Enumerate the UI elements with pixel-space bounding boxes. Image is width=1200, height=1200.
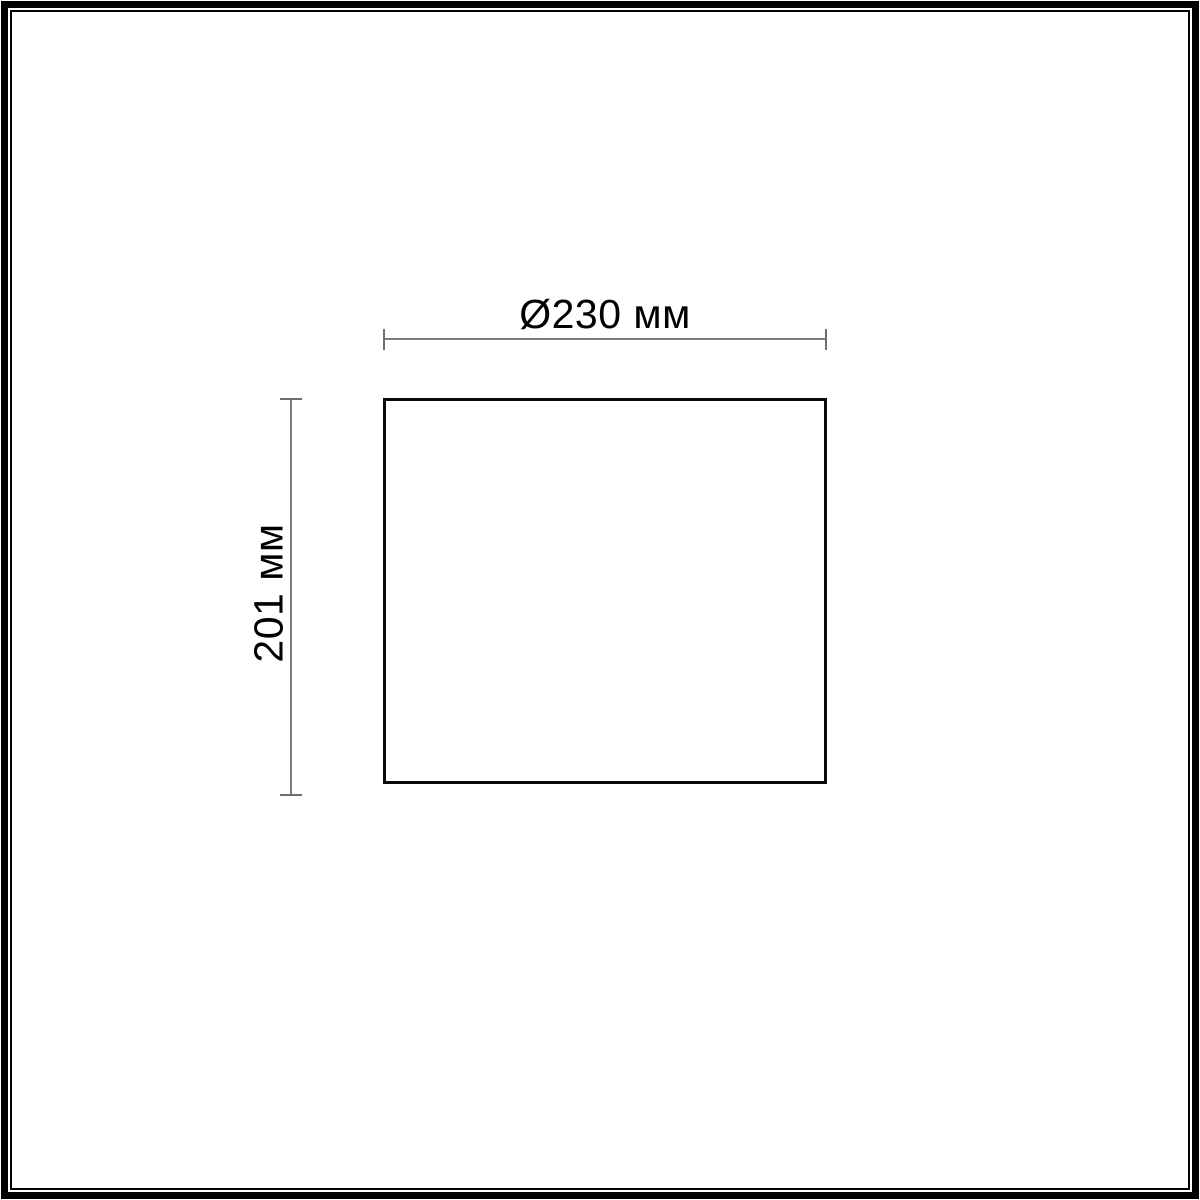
height-dimension-tick-bottom (280, 794, 302, 796)
dimension-drawing-page: { "diagram": { "type": "product-dimensio… (0, 0, 1200, 1200)
height-dimension-tick-top (280, 398, 302, 400)
height-dimension-label: 201 мм (246, 523, 293, 662)
width-dimension-line (384, 338, 826, 340)
product-outline-rect (383, 398, 827, 784)
width-dimension-label: Ø230 мм (384, 292, 826, 337)
